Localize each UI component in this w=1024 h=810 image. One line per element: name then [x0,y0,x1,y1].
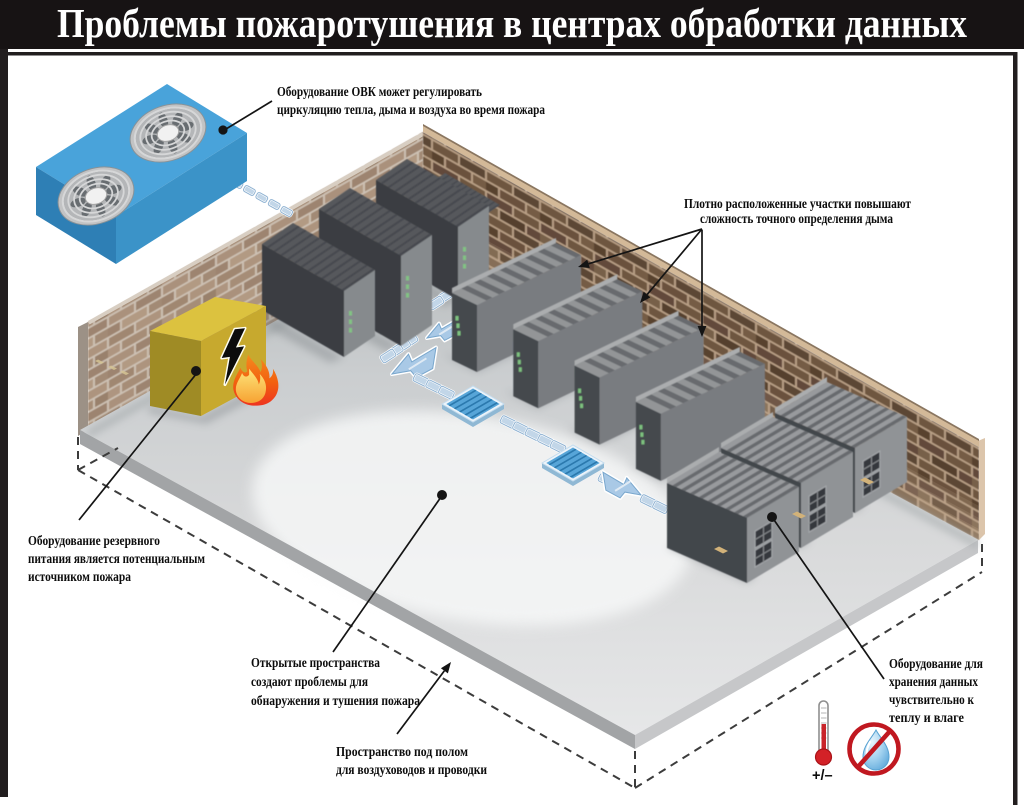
svg-text:источником пожара: источником пожара [28,569,131,584]
svg-text:Оборудование ОВК может регулир: Оборудование ОВК может регулировать [277,84,482,99]
svg-text:+/–: +/– [812,768,833,784]
svg-text:обнаружения и тушения пожара: обнаружения и тушения пожара [251,693,420,708]
svg-text:Оборудование резервного: Оборудование резервного [28,533,160,548]
svg-text:создают проблемы для: создают проблемы для [251,674,368,689]
svg-text:для воздуховодов и проводки: для воздуховодов и проводки [336,762,487,777]
svg-text:циркуляцию тепла, дыма и возду: циркуляцию тепла, дыма и воздуха во врем… [277,102,545,117]
svg-text:питания является потенциальным: питания является потенциальным [28,551,205,566]
svg-text:Пространство под полом: Пространство под полом [336,744,468,759]
svg-text:Открытые пространства: Открытые пространства [251,655,380,670]
svg-text:сложность точного определения: сложность точного определения дыма [700,211,893,226]
svg-text:чувствительно к: чувствительно к [889,692,974,707]
svg-text:Оборудование для: Оборудование для [889,656,983,671]
svg-text:Плотно расположенные участки п: Плотно расположенные участки повышают [684,196,911,211]
svg-text:теплу и влаге: теплу и влаге [889,710,964,725]
svg-text:Проблемы пожаротушения в центр: Проблемы пожаротушения в центрах обработ… [57,0,967,46]
svg-text:хранения данных: хранения данных [889,674,978,689]
